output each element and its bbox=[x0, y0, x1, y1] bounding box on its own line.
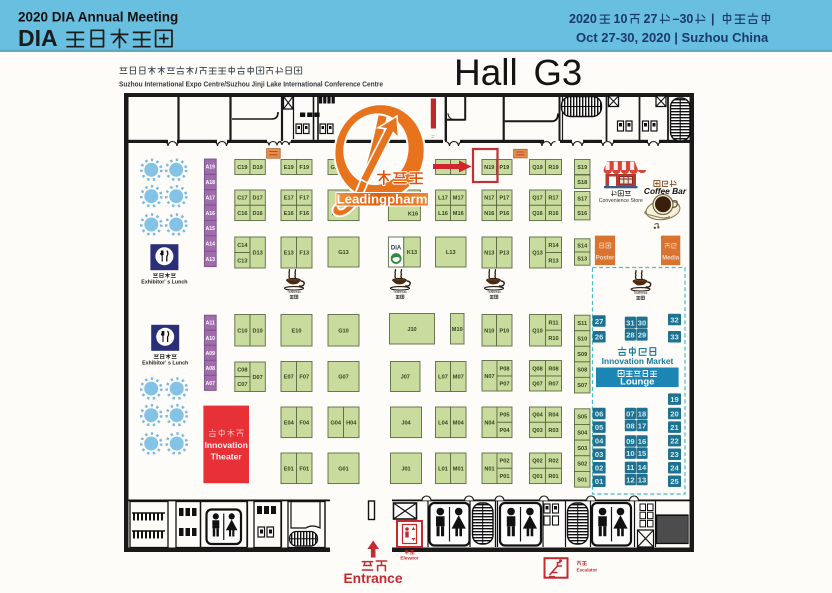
svg-text:Theater: Theater bbox=[211, 452, 243, 462]
svg-text:DIA: DIA bbox=[18, 25, 58, 51]
svg-text:Q03: Q03 bbox=[532, 428, 543, 434]
svg-text:Q02: Q02 bbox=[532, 459, 543, 465]
svg-text:P08: P08 bbox=[500, 366, 510, 372]
svg-text:S08: S08 bbox=[577, 368, 587, 374]
svg-text:R10: R10 bbox=[548, 336, 558, 342]
svg-text:33: 33 bbox=[670, 333, 678, 342]
svg-text:Exhibitorʼ s Lunch: Exhibitorʼ s Lunch bbox=[141, 280, 187, 286]
svg-text:Leadingpharm: Leadingpharm bbox=[337, 191, 428, 206]
svg-text:L16: L16 bbox=[438, 211, 448, 217]
svg-text:08: 08 bbox=[626, 421, 634, 430]
svg-text:H04: H04 bbox=[346, 420, 357, 426]
svg-text:21: 21 bbox=[670, 423, 679, 432]
svg-text:D07: D07 bbox=[253, 375, 263, 381]
svg-text:A18: A18 bbox=[206, 180, 216, 186]
svg-text:F16: F16 bbox=[299, 211, 309, 217]
svg-text:A14: A14 bbox=[206, 242, 216, 248]
svg-text:DIA: DIA bbox=[391, 246, 402, 252]
svg-text:03: 03 bbox=[595, 450, 603, 459]
svg-text:Lounge: Lounge bbox=[620, 377, 654, 388]
svg-text:M07: M07 bbox=[453, 375, 464, 381]
svg-text:D17: D17 bbox=[253, 196, 263, 202]
svg-text:F19: F19 bbox=[299, 165, 309, 171]
svg-text:04: 04 bbox=[595, 436, 604, 445]
svg-text:Q16: Q16 bbox=[532, 211, 543, 217]
svg-text:R04: R04 bbox=[548, 413, 559, 419]
svg-text:Elevator: Elevator bbox=[400, 556, 418, 561]
svg-text:F01: F01 bbox=[299, 466, 309, 472]
svg-text:P04: P04 bbox=[500, 428, 511, 434]
svg-text:C16: C16 bbox=[237, 211, 247, 217]
svg-text:S14: S14 bbox=[577, 243, 588, 249]
svg-text:Convenience Store: Convenience Store bbox=[599, 198, 643, 204]
svg-text:A13: A13 bbox=[206, 257, 216, 263]
svg-text:29: 29 bbox=[638, 331, 646, 340]
svg-text:A09: A09 bbox=[206, 351, 216, 357]
svg-text:C13: C13 bbox=[237, 258, 247, 264]
svg-text:06: 06 bbox=[595, 409, 603, 418]
svg-text:C08: C08 bbox=[237, 367, 247, 373]
svg-text:20: 20 bbox=[670, 409, 678, 418]
svg-text:C14: C14 bbox=[237, 243, 248, 249]
svg-text:Entrance: Entrance bbox=[343, 571, 402, 586]
svg-text:Escalator: Escalator bbox=[577, 568, 598, 573]
svg-text:L04: L04 bbox=[438, 420, 449, 426]
svg-text:Q17: Q17 bbox=[532, 196, 543, 202]
svg-text:2020 DIA Annual Meeting: 2020 DIA Annual Meeting bbox=[18, 10, 178, 25]
svg-text:G13: G13 bbox=[338, 250, 349, 256]
svg-text:R16: R16 bbox=[548, 211, 558, 217]
svg-text:A08: A08 bbox=[206, 366, 216, 372]
svg-text:Q19: Q19 bbox=[532, 165, 543, 171]
svg-text:S05: S05 bbox=[577, 415, 587, 421]
svg-text:C19: C19 bbox=[237, 165, 247, 171]
svg-text:F13: F13 bbox=[299, 251, 309, 257]
svg-text:22: 22 bbox=[670, 436, 678, 445]
svg-text:N16: N16 bbox=[484, 211, 494, 217]
svg-text:E01: E01 bbox=[284, 466, 294, 472]
svg-text:28: 28 bbox=[626, 331, 634, 340]
svg-text:Poster: Poster bbox=[596, 256, 615, 262]
svg-text:G3: G3 bbox=[534, 52, 583, 93]
svg-text:31: 31 bbox=[626, 318, 635, 327]
svg-text:Suzhou International Expo Cent: Suzhou International Expo Centre/Suzhou … bbox=[119, 80, 383, 89]
svg-text:16: 16 bbox=[638, 437, 646, 446]
svg-text:07: 07 bbox=[626, 409, 634, 418]
svg-text:K13: K13 bbox=[407, 250, 417, 256]
svg-text:S16: S16 bbox=[577, 211, 587, 217]
svg-text:Teabreak: Teabreak bbox=[393, 290, 407, 294]
svg-text:32: 32 bbox=[670, 315, 678, 324]
svg-text:Q08: Q08 bbox=[532, 366, 543, 372]
svg-text:Q04: Q04 bbox=[532, 413, 543, 419]
svg-text:N19: N19 bbox=[484, 165, 494, 171]
svg-text:N10: N10 bbox=[484, 328, 494, 334]
svg-text:F04: F04 bbox=[299, 420, 310, 426]
svg-text:S13: S13 bbox=[577, 257, 587, 263]
svg-text:R17: R17 bbox=[548, 196, 558, 202]
svg-text:R03: R03 bbox=[548, 428, 558, 434]
svg-text:02: 02 bbox=[595, 464, 603, 473]
svg-text:27: 27 bbox=[644, 12, 658, 26]
svg-text:R01: R01 bbox=[548, 474, 558, 480]
svg-text:P13: P13 bbox=[499, 251, 509, 257]
svg-text:E13: E13 bbox=[284, 251, 294, 257]
svg-text:|: | bbox=[711, 12, 715, 26]
svg-text:A10: A10 bbox=[206, 336, 216, 342]
svg-text:10: 10 bbox=[614, 12, 628, 26]
svg-text:01: 01 bbox=[595, 477, 604, 486]
svg-text:17: 17 bbox=[638, 421, 646, 430]
svg-text:27: 27 bbox=[595, 317, 603, 326]
svg-text:A19: A19 bbox=[206, 165, 216, 171]
svg-text:R14: R14 bbox=[548, 243, 559, 249]
svg-text:15: 15 bbox=[638, 449, 647, 458]
svg-text:F07: F07 bbox=[299, 375, 309, 381]
svg-text:L17: L17 bbox=[438, 196, 448, 202]
svg-text:C10: C10 bbox=[237, 328, 247, 334]
svg-text:Media: Media bbox=[662, 256, 680, 262]
svg-text:C07: C07 bbox=[237, 382, 247, 388]
svg-text:S17: S17 bbox=[577, 197, 587, 203]
svg-text:A15: A15 bbox=[206, 226, 216, 232]
svg-text:C17: C17 bbox=[237, 196, 247, 202]
svg-text:N04: N04 bbox=[484, 420, 495, 426]
svg-text:S18: S18 bbox=[577, 180, 587, 186]
svg-text:05: 05 bbox=[595, 423, 604, 432]
svg-text:A07: A07 bbox=[206, 381, 216, 387]
svg-text:G10: G10 bbox=[338, 328, 349, 334]
svg-text:18: 18 bbox=[638, 409, 646, 418]
svg-text:S09: S09 bbox=[577, 352, 587, 358]
svg-text:30: 30 bbox=[638, 318, 646, 327]
svg-text:R08: R08 bbox=[548, 366, 558, 372]
svg-text:M10: M10 bbox=[452, 327, 463, 333]
svg-text:25: 25 bbox=[670, 477, 679, 486]
svg-text:E07: E07 bbox=[284, 375, 294, 381]
svg-text:G07: G07 bbox=[338, 375, 349, 381]
svg-text:Hall: Hall bbox=[454, 52, 518, 93]
svg-text:G01: G01 bbox=[338, 466, 349, 472]
svg-text:10: 10 bbox=[626, 449, 634, 458]
svg-text:S19: S19 bbox=[577, 165, 587, 171]
svg-text:S02: S02 bbox=[577, 462, 587, 468]
svg-text:S03: S03 bbox=[577, 446, 587, 452]
svg-text:Exhibitorʼ s Lunch: Exhibitorʼ s Lunch bbox=[142, 361, 188, 367]
svg-text:R02: R02 bbox=[548, 459, 558, 465]
svg-text:N17: N17 bbox=[484, 196, 494, 202]
svg-text:P07: P07 bbox=[500, 382, 510, 388]
svg-text:P16: P16 bbox=[499, 211, 509, 217]
svg-text:Teabreak: Teabreak bbox=[487, 290, 501, 294]
svg-text:Teabreak: Teabreak bbox=[634, 291, 648, 295]
svg-text:2020: 2020 bbox=[569, 12, 597, 26]
svg-text:N13: N13 bbox=[484, 251, 494, 257]
svg-text:12: 12 bbox=[626, 475, 634, 484]
svg-text:A16: A16 bbox=[206, 211, 216, 217]
svg-text:Innovation Market: Innovation Market bbox=[602, 356, 674, 366]
svg-text:A11: A11 bbox=[206, 321, 215, 327]
svg-text:R13: R13 bbox=[548, 258, 558, 264]
svg-text:E16: E16 bbox=[284, 211, 294, 217]
svg-text:S07: S07 bbox=[577, 383, 587, 389]
svg-text:D19: D19 bbox=[253, 165, 263, 171]
svg-text:Q01: Q01 bbox=[532, 474, 543, 480]
svg-text:–30: –30 bbox=[673, 12, 694, 26]
svg-text:J07: J07 bbox=[401, 375, 410, 381]
svg-text:P17: P17 bbox=[499, 196, 509, 202]
svg-text:Innovation: Innovation bbox=[204, 440, 247, 450]
svg-text:P01: P01 bbox=[500, 474, 510, 480]
svg-text:R07: R07 bbox=[548, 382, 558, 388]
svg-text:L01: L01 bbox=[438, 466, 448, 472]
svg-text:N01: N01 bbox=[484, 466, 494, 472]
svg-text:F17: F17 bbox=[299, 196, 309, 202]
svg-text:M17: M17 bbox=[453, 196, 464, 202]
svg-text:D10: D10 bbox=[253, 328, 263, 334]
svg-text:M01: M01 bbox=[453, 466, 464, 472]
svg-text:L07: L07 bbox=[438, 375, 448, 381]
svg-text:P02: P02 bbox=[500, 459, 510, 465]
svg-text:S04: S04 bbox=[577, 430, 588, 436]
svg-text:J10: J10 bbox=[407, 327, 416, 333]
svg-text:26: 26 bbox=[595, 333, 603, 342]
svg-text:M04: M04 bbox=[453, 420, 465, 426]
svg-text:S10: S10 bbox=[577, 337, 587, 343]
svg-text:S01: S01 bbox=[577, 477, 587, 483]
svg-text:D13: D13 bbox=[253, 251, 263, 257]
svg-text:19: 19 bbox=[670, 395, 678, 404]
svg-text:R19: R19 bbox=[548, 165, 558, 171]
svg-text:23: 23 bbox=[670, 450, 678, 459]
svg-text:L13: L13 bbox=[446, 250, 456, 256]
svg-text:09: 09 bbox=[626, 437, 634, 446]
svg-text:E04: E04 bbox=[284, 420, 295, 426]
svg-text:Q13: Q13 bbox=[532, 251, 543, 257]
svg-text:D16: D16 bbox=[253, 211, 263, 217]
svg-text:Teabreak: Teabreak bbox=[287, 290, 301, 294]
svg-text:J04: J04 bbox=[401, 420, 411, 426]
svg-text:13: 13 bbox=[638, 475, 646, 484]
svg-text:E19: E19 bbox=[284, 165, 294, 171]
svg-text:P05: P05 bbox=[500, 413, 510, 419]
svg-text:Oct 27-30, 2020 | Suzhou Chin: Oct 27-30, 2020 | Suzhou China bbox=[576, 30, 769, 45]
svg-text:Q07: Q07 bbox=[532, 382, 543, 388]
svg-text:S11: S11 bbox=[577, 321, 587, 327]
svg-text:J01: J01 bbox=[401, 466, 410, 472]
svg-text:E17: E17 bbox=[284, 196, 294, 202]
svg-text:G04: G04 bbox=[330, 420, 341, 426]
svg-text:Q10: Q10 bbox=[532, 328, 543, 334]
svg-text:14: 14 bbox=[638, 463, 647, 472]
svg-text:N07: N07 bbox=[484, 374, 494, 380]
svg-text:11: 11 bbox=[626, 463, 635, 472]
svg-text:A17: A17 bbox=[206, 195, 216, 201]
svg-text:K16: K16 bbox=[408, 212, 418, 218]
svg-text:P10: P10 bbox=[499, 328, 509, 334]
svg-text:E10: E10 bbox=[292, 328, 302, 334]
svg-text:24: 24 bbox=[670, 464, 679, 473]
svg-text:R11: R11 bbox=[549, 320, 559, 326]
svg-text:P19: P19 bbox=[499, 165, 509, 171]
svg-text:M16: M16 bbox=[453, 211, 464, 217]
